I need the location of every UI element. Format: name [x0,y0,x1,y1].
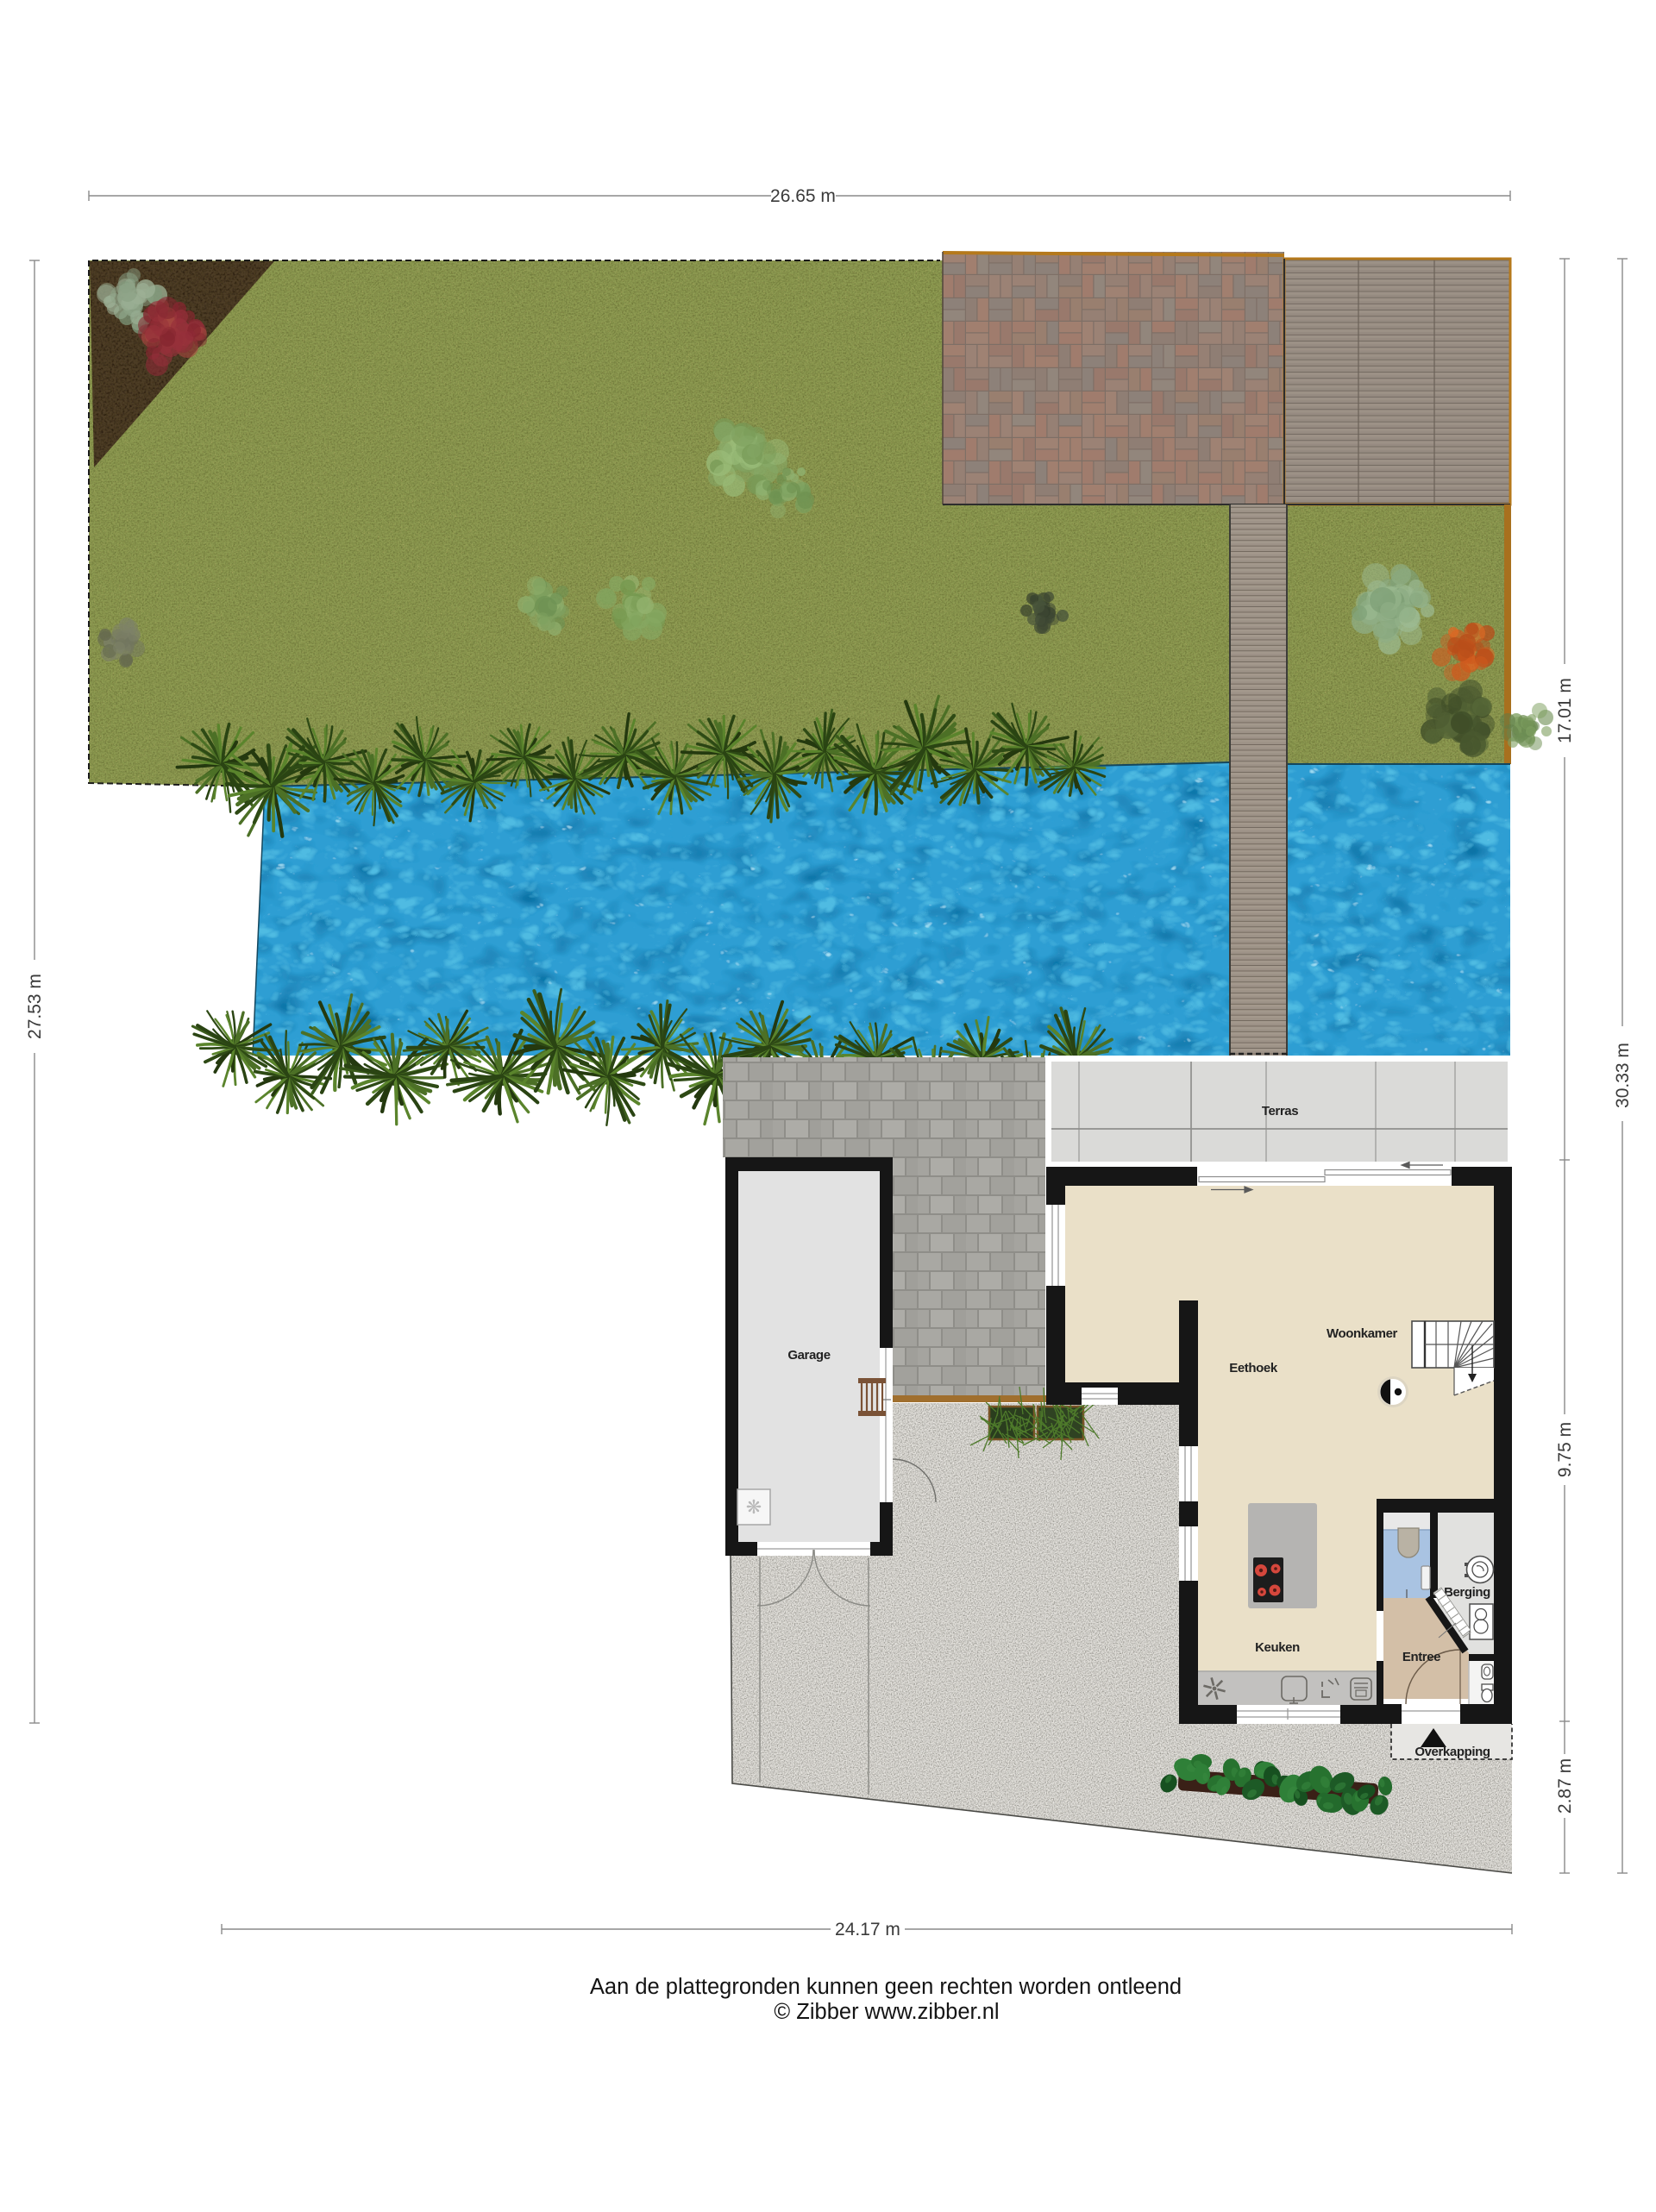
svg-text:Eethoek: Eethoek [1229,1361,1278,1375]
svg-text:26.65 m: 26.65 m [770,186,836,206]
svg-text:24.17 m: 24.17 m [835,1920,900,1939]
svg-text:17.01 m: 17.01 m [1555,678,1575,743]
svg-text:Aan de plattegronden kunnen ge: Aan de plattegronden kunnen geen rechten… [590,1975,1182,1999]
svg-text:Garage: Garage [787,1348,830,1363]
svg-text:Terras: Terras [1262,1104,1298,1119]
svg-text:❋: ❋ [746,1496,762,1518]
svg-text:30.33 m: 30.33 m [1613,1043,1633,1108]
svg-text:Woonkamer: Woonkamer [1327,1326,1398,1341]
svg-text:27.53 m: 27.53 m [25,974,45,1039]
svg-text:Keuken: Keuken [1255,1640,1300,1655]
svg-text:Overkapping: Overkapping [1414,1745,1490,1759]
svg-text:Entree: Entree [1402,1650,1440,1664]
svg-text:© Zibber www.zibber.nl: © Zibber www.zibber.nl [774,2000,999,2024]
svg-text:2.87 m: 2.87 m [1555,1758,1575,1814]
svg-text:9.75 m: 9.75 m [1555,1422,1575,1477]
svg-text:Berging: Berging [1444,1585,1490,1600]
